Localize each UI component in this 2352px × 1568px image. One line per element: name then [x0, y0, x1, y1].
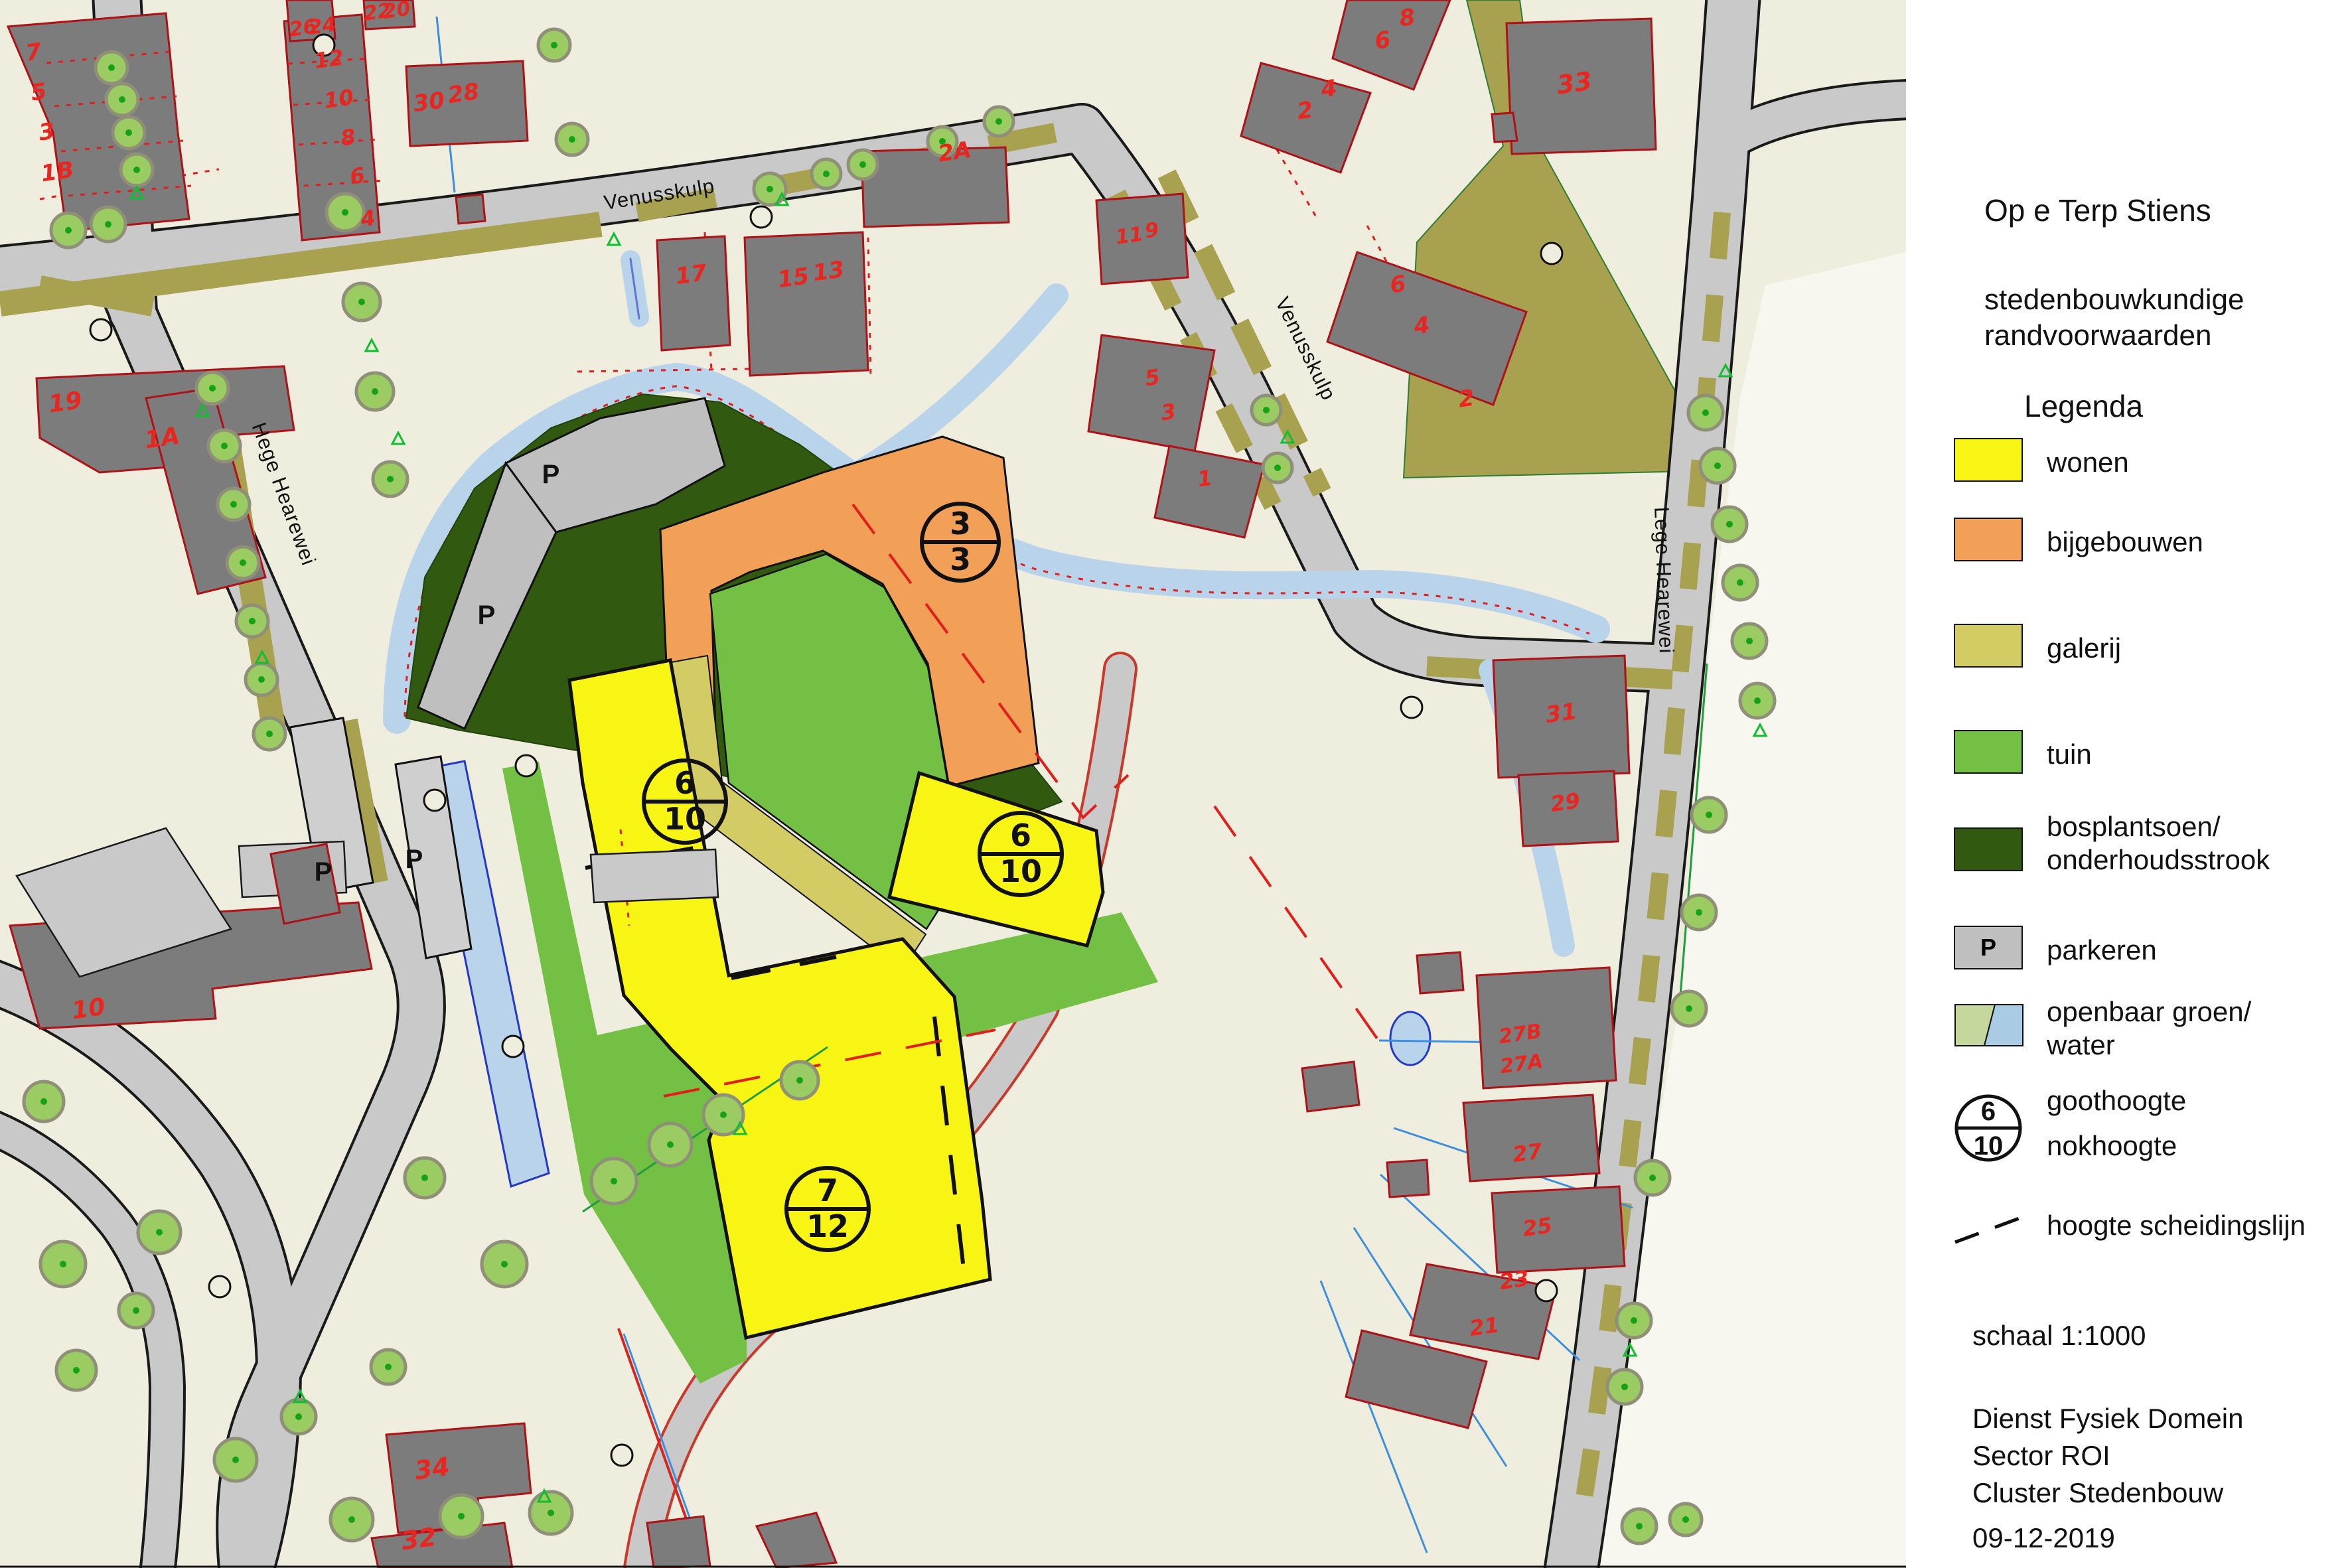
tree-icon — [119, 1293, 153, 1328]
tree-icon — [1617, 1303, 1651, 1338]
building-bottom-1 — [647, 1516, 710, 1568]
tree-icon — [1622, 1509, 1656, 1543]
tree-icon — [56, 1350, 96, 1390]
nokhoogte-value: 10 — [999, 853, 1042, 889]
utility-circle — [611, 1445, 632, 1466]
tree-icon — [91, 207, 125, 242]
house-number: 13 — [811, 256, 845, 287]
tree-icon — [530, 1492, 572, 1534]
house-number: 25 — [1521, 1212, 1554, 1242]
bosplantsoen-label: bosplantsoen/ onderhoudsstrook — [2047, 810, 2270, 877]
parking-label: P — [542, 460, 560, 489]
tree-icon — [1682, 895, 1716, 930]
parking-label: P — [315, 857, 332, 887]
galerij-label: galerij — [2047, 632, 2121, 665]
house-number: 31 — [1544, 698, 1578, 729]
tree-icon — [356, 373, 394, 410]
tuin-label: tuin — [2047, 738, 2092, 771]
tree-icon — [556, 123, 588, 155]
tree-icon — [343, 283, 380, 321]
goothoogte-nokhoogte-symbol: 712 — [786, 1168, 869, 1250]
org-line1: Dienst Fysiek Domein — [1972, 1400, 2243, 1437]
goothoogte-bottom-value: 10 — [1974, 1131, 2004, 1161]
house-number: 30 — [411, 87, 446, 117]
parking-label: P — [478, 601, 496, 630]
tree-icon — [440, 1495, 482, 1537]
house-number: 20 — [382, 0, 412, 24]
goothoogte-top-value: 6 — [1981, 1097, 1996, 1126]
utility-circle — [424, 790, 445, 811]
scheidingslijn-label: hoogte scheidingslijn — [2047, 1209, 2306, 1242]
nokhoogte-value: 12 — [806, 1208, 849, 1244]
tree-icon — [1700, 449, 1735, 483]
utility-circle — [209, 1276, 230, 1297]
tree-icon — [405, 1158, 445, 1198]
tree-icon — [1688, 395, 1723, 430]
tree-icon — [96, 52, 127, 84]
utility-circle — [90, 319, 111, 340]
pond — [1390, 1012, 1430, 1065]
org-line2: Sector ROI — [1972, 1437, 2243, 1474]
tree-icon — [1672, 991, 1706, 1026]
tree-icon — [591, 1159, 636, 1204]
goothoogte-nokhoogte-symbol: 610 — [644, 760, 726, 843]
shed-top-center — [456, 194, 485, 224]
openbaar-label: openbaar groen/ water — [2047, 995, 2251, 1062]
tree-icon — [1635, 1161, 1670, 1195]
house-number: 32 — [400, 1522, 438, 1556]
utility-circle — [1541, 243, 1562, 264]
house-number: 1A — [143, 423, 181, 455]
goothoogte-value: 3 — [950, 506, 971, 541]
legend-row-openbaar: openbaar groen/ water — [1954, 1002, 2325, 1048]
house-number: 1B — [39, 157, 76, 188]
goothoogte-symbol: 6 10 — [1954, 1088, 2040, 1175]
tree-icon — [254, 718, 285, 750]
legend-row-goothoogte: 6 10 goothoogte nokhoogte — [1954, 1088, 2325, 1181]
utility-circle — [502, 1036, 524, 1057]
tree-icon — [649, 1123, 692, 1166]
tree-icon — [281, 1399, 316, 1434]
house-number: 24 — [307, 13, 338, 39]
subtitle-line2: randvoorwaarden — [1984, 318, 2244, 354]
tree-icon — [106, 84, 138, 115]
tree-icon — [1252, 395, 1281, 425]
tree-icon — [1263, 453, 1292, 482]
house-number: 29 — [1549, 788, 1581, 817]
tree-icon — [214, 1439, 257, 1481]
house-number: 27 — [1511, 1138, 1544, 1167]
house-number: 10 — [323, 84, 355, 113]
goothoogte-value: 6 — [1010, 818, 1031, 853]
tree-icon — [538, 29, 570, 61]
org-line3: Cluster Stedenbouw — [1972, 1474, 2243, 1512]
house-number: 2A — [936, 137, 973, 168]
tree-icon — [812, 159, 841, 188]
page-subtitle: stedenbouwkundige randvoorwaarden — [1984, 282, 2244, 354]
building-25 — [1492, 1186, 1625, 1273]
tree-icon — [246, 664, 277, 695]
building-17 — [657, 236, 730, 350]
legend-row-galerij: galerij — [1954, 624, 2325, 670]
tree-icon — [1670, 1504, 1702, 1535]
goothoogte-label-line1: goothoogte — [2047, 1084, 2186, 1117]
legend-row-bijgebouwen: bijgebouwen — [1954, 518, 2325, 564]
house-number: 10 — [70, 993, 107, 1025]
tree-icon — [236, 605, 268, 637]
legend-row-bosplantsoen: bosplantsoen/ onderhoudsstrook — [1954, 820, 2325, 866]
house-number: 23 — [1498, 1265, 1530, 1295]
bijgebouwen-swatch — [1954, 518, 2023, 561]
building-2A — [861, 147, 1009, 227]
tree-icon — [482, 1242, 527, 1287]
openbaar-label-line1: openbaar groen/ — [2047, 995, 2251, 1029]
utility-circle — [1536, 1280, 1557, 1301]
house-number: 17 — [674, 259, 709, 290]
bosplantsoen-swatch — [1954, 827, 2023, 871]
bosplantsoen-label-line1: bosplantsoen/ — [2047, 810, 2270, 843]
tree-icon — [848, 150, 877, 179]
shed-27 — [1417, 952, 1463, 993]
tree-icon — [781, 1062, 818, 1099]
utility-circle — [751, 206, 772, 228]
wonen-swatch — [1954, 438, 2023, 482]
legend-row-tuin: tuin — [1954, 730, 2325, 776]
building-light-3 — [591, 849, 718, 902]
scheidingslijn-symbol — [1954, 1201, 2040, 1247]
bijgebouwen-label: bijgebouwen — [2047, 526, 2203, 559]
tree-icon — [754, 173, 786, 205]
tree-icon — [138, 1211, 181, 1253]
parkeren-swatch: P — [1954, 926, 2023, 969]
utility-circle — [1401, 697, 1422, 718]
date-text: 09-12-2019 — [1972, 1520, 2115, 1557]
house-number: 21 — [1468, 1312, 1501, 1341]
tree-icon — [371, 1350, 405, 1384]
tree-icon — [218, 488, 250, 520]
tree-icon — [373, 462, 407, 496]
tree-icon — [1740, 683, 1775, 718]
house-number: 34 — [413, 1452, 451, 1486]
building-27 — [1463, 1095, 1599, 1181]
tree-icon — [1712, 507, 1747, 541]
nokhoogte-value: 3 — [950, 541, 971, 577]
house-number: 11 — [1114, 222, 1145, 249]
shed-25 — [1387, 1160, 1429, 1197]
legend-row-parkeren: P parkeren — [1954, 926, 2325, 972]
wonen-label: wonen — [2047, 446, 2129, 479]
goothoogte-value: 7 — [817, 1173, 838, 1208]
tree-icon — [40, 1242, 86, 1287]
legend-row-wonen: wonen — [1954, 438, 2325, 484]
shed-field — [1302, 1062, 1359, 1111]
legend-row-scheidingslijn: hoogte scheidingslijn — [1954, 1201, 2325, 1247]
tree-icon — [327, 194, 364, 231]
building-15-13 — [745, 232, 868, 376]
goothoogte-label: goothoogte nokhoogte — [2047, 1084, 2186, 1163]
house-number: 33 — [1555, 66, 1593, 100]
utility-circle — [516, 755, 537, 776]
house-number: 12 — [313, 44, 345, 74]
house-number: 19 — [47, 387, 84, 419]
goothoogte-nokhoogte-symbol: 33 — [922, 504, 999, 581]
tree-icon — [121, 154, 153, 186]
goothoogte-nokhoogte-symbol: 610 — [980, 813, 1062, 895]
legend-title: Legenda — [2024, 388, 2143, 424]
tree-icon — [113, 117, 145, 149]
tree-icon — [331, 1498, 373, 1541]
tree-icon — [984, 107, 1013, 136]
openbaar-groen-water-swatch — [1954, 1002, 2033, 1048]
bosplantsoen-label-line2: onderhoudsstrook — [2047, 843, 2270, 877]
goothoogte-label-line2: nokhoogte — [2047, 1129, 2186, 1163]
goothoogte-value: 6 — [674, 765, 696, 801]
openbaar-label-line2: water — [2047, 1029, 2251, 1062]
tree-icon — [1607, 1370, 1642, 1404]
tree-icon — [1723, 565, 1757, 600]
tuin-swatch — [1954, 730, 2023, 774]
galerij-swatch — [1954, 624, 2023, 668]
tree-icon — [196, 372, 228, 404]
parking-label: P — [405, 845, 423, 874]
subtitle-line1: stedenbouwkundige — [1984, 282, 2244, 318]
house-number: 15 — [776, 263, 810, 293]
tree-icon — [227, 547, 259, 579]
tree-icon — [1732, 624, 1767, 658]
parkeren-label: parkeren — [2047, 934, 2157, 967]
tree-icon — [208, 430, 240, 462]
tree-icon — [24, 1082, 64, 1121]
page-title: Op e Terp Stiens — [1984, 192, 2211, 228]
tree-icon — [1692, 798, 1726, 832]
building-5-3 — [1088, 335, 1214, 451]
legend-panel: Op e Terp Stiens stedenbouwkundige randv… — [1906, 0, 2352, 1568]
planning-map-page: { "panel": { "title": "Op e Terp Stiens"… — [0, 0, 2352, 1568]
house-number: 28 — [446, 78, 480, 109]
organisation-block: Dienst Fysiek Domein Sector ROI Cluster … — [1972, 1400, 2243, 1512]
scale-text: schaal 1:1000 — [1972, 1317, 2146, 1354]
tree-icon — [51, 213, 86, 248]
nokhoogte-value: 10 — [664, 801, 706, 837]
shed-near-33 — [1492, 113, 1517, 142]
